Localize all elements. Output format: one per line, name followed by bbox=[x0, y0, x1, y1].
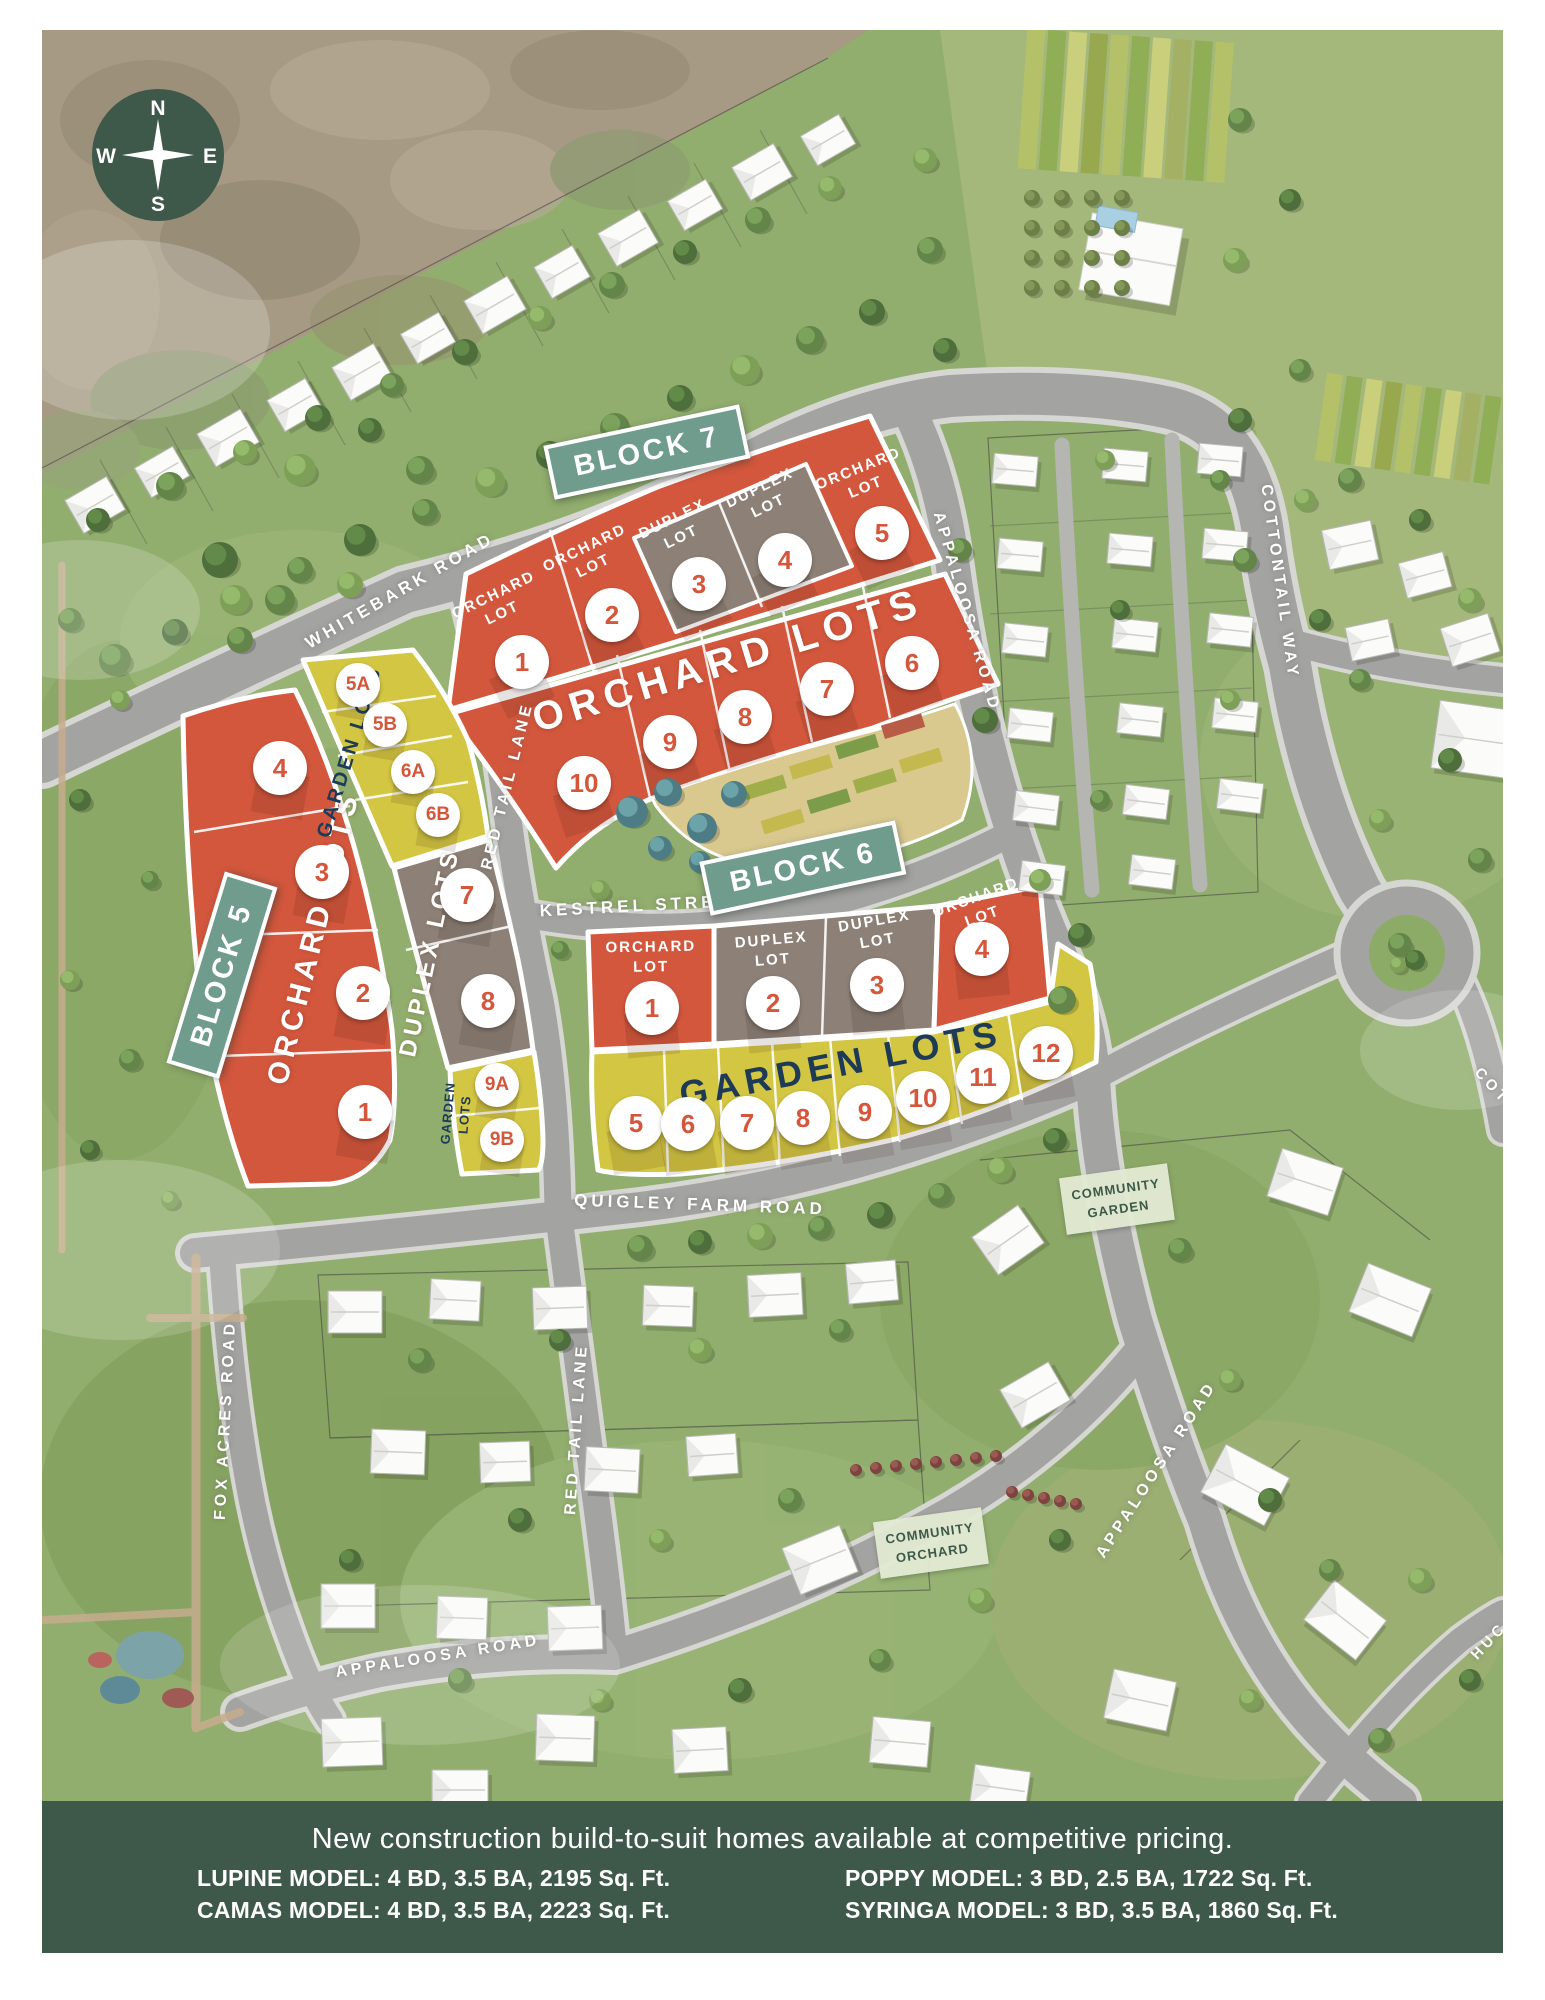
lot-number-b7-3: 3 bbox=[672, 557, 726, 611]
b5-garden-lots-9-label: GARDENLOTS bbox=[437, 1081, 476, 1146]
site-plan-map: WHITEBARK ROADCOTTONTAIL WAYAPPALOOSA RO… bbox=[42, 30, 1503, 1801]
syringa-model-spec: SYRINGA MODEL: 3 BD, 3.5 BA, 1860 Sq. Ft… bbox=[845, 1897, 1338, 1924]
lot-number-b6-12: 12 bbox=[1019, 1026, 1073, 1080]
lot-number-b6-9: 9 bbox=[838, 1085, 892, 1139]
block-6-sign: BLOCK 6 bbox=[699, 820, 906, 915]
b6-duplex-lot-3-label: DUPLEXLOT bbox=[837, 905, 916, 956]
camas-model-spec: CAMAS MODEL: 4 BD, 3.5 BA, 2223 Sq. Ft. bbox=[197, 1897, 670, 1924]
cottontail-edge-label: COT bbox=[1471, 1064, 1503, 1108]
community-orchard-sign: COMMUNITYORCHARD bbox=[873, 1507, 989, 1579]
lot-number-b7-8: 8 bbox=[718, 690, 772, 744]
lot-number-b5-6B: 6B bbox=[416, 793, 460, 837]
compass-rose: N S W E bbox=[92, 89, 224, 221]
lot-number-b7-1: 1 bbox=[495, 635, 549, 689]
compass-south: S bbox=[151, 193, 165, 216]
b6-orchard-lot-1-label-line2: LOT bbox=[606, 956, 697, 977]
lot-number-b6-10: 10 bbox=[896, 1071, 950, 1125]
lot-number-b6-7: 7 bbox=[720, 1096, 774, 1150]
lot-number-b5-1: 1 bbox=[338, 1085, 392, 1139]
b6-duplex-lot-2-label: DUPLEXLOT bbox=[734, 927, 810, 972]
b6-orchard-lot-1-label-line1: ORCHARD bbox=[605, 937, 696, 958]
lot-number-b5-5B: 5B bbox=[363, 703, 407, 747]
appaloosa-road-sw-label: APPALOOSA ROAD bbox=[334, 1632, 541, 1682]
b7-orchard-lot-1-label: ORCHARDLOT bbox=[449, 567, 548, 642]
b7-duplex-lot-3-label: DUPLEXLOT bbox=[636, 495, 719, 562]
site-plan-page: WHITEBARK ROADCOTTONTAIL WAYAPPALOOSA RO… bbox=[0, 0, 1545, 2000]
block-5-sign: BLOCK 5 bbox=[166, 871, 277, 1079]
lot-number-b7-6: 6 bbox=[885, 636, 939, 690]
poppy-model-spec: POPPY MODEL: 3 BD, 2.5 BA, 1722 Sq. Ft. bbox=[845, 1865, 1313, 1892]
lupine-model-spec: LUPINE MODEL: 4 BD, 3.5 BA, 2195 Sq. Ft. bbox=[197, 1865, 670, 1892]
lot-number-b5-4: 4 bbox=[253, 741, 307, 795]
quigley-farm-road-label: QUIGLEY FARM ROAD bbox=[574, 1191, 826, 1220]
lot-number-b7-2: 2 bbox=[585, 588, 639, 642]
lot-number-b5-9A: 9A bbox=[475, 1063, 519, 1107]
lot-number-b6-4: 4 bbox=[955, 922, 1009, 976]
compass-north: N bbox=[150, 97, 165, 120]
lot-number-b7-4: 4 bbox=[758, 533, 812, 587]
lot-number-b6-5: 5 bbox=[609, 1096, 663, 1150]
lot-number-b5-9B: 9B bbox=[480, 1118, 524, 1162]
appaloosa-road-n-label: APPALOOSA ROAD bbox=[929, 510, 1003, 714]
b7-orchard-lot-5-label: ORCHARDLOT bbox=[813, 443, 912, 513]
footer-headline: New construction build-to-suit homes ava… bbox=[42, 1823, 1503, 1856]
compass-west: W bbox=[96, 145, 116, 168]
map-labels: WHITEBARK ROADCOTTONTAIL WAYAPPALOOSA RO… bbox=[42, 30, 1503, 1801]
lot-number-b5-8: 8 bbox=[461, 974, 515, 1028]
cottontail-way-label: COTTONTAIL WAY bbox=[1256, 483, 1301, 680]
b6-orchard-lot-1-label: ORCHARDLOT bbox=[605, 937, 696, 978]
b7-orchard-lot-2-label: ORCHARDLOT bbox=[540, 520, 639, 595]
community-garden-sign: COMMUNITYGARDEN bbox=[1059, 1163, 1175, 1235]
red-tail-lane-s-label: RED TAIL LANE bbox=[562, 1342, 592, 1515]
lot-number-b7-5: 5 bbox=[855, 506, 909, 560]
lot-number-b6-1: 1 bbox=[625, 981, 679, 1035]
lot-number-b7-10: 10 bbox=[557, 756, 611, 810]
lot-number-b5-6A: 6A bbox=[391, 750, 435, 794]
huckleberry-edge-label: HUC bbox=[1468, 1619, 1503, 1663]
compass-east: E bbox=[203, 145, 217, 168]
lot-number-b6-8: 8 bbox=[776, 1091, 830, 1145]
lot-number-b5-7: 7 bbox=[440, 868, 494, 922]
lot-number-b5-3: 3 bbox=[295, 845, 349, 899]
lot-number-b6-6: 6 bbox=[661, 1097, 715, 1151]
appaloosa-road-se-label: APPALOOSA ROAD bbox=[1093, 1378, 1221, 1562]
lot-number-b6-11: 11 bbox=[956, 1050, 1010, 1104]
lot-number-b6-3: 3 bbox=[850, 958, 904, 1012]
lot-number-b5-5A: 5A bbox=[336, 663, 380, 707]
lot-number-b7-7: 7 bbox=[800, 662, 854, 716]
lot-number-b6-2: 2 bbox=[746, 976, 800, 1030]
red-tail-lane-n-label: RED TAIL LANE bbox=[478, 700, 537, 872]
fox-acres-road-label: FOX ACRES ROAD bbox=[212, 1320, 240, 1521]
block-7-sign: BLOCK 7 bbox=[543, 404, 750, 499]
footer-banner: New construction build-to-suit homes ava… bbox=[42, 1801, 1503, 1953]
lot-number-b5-2: 2 bbox=[336, 966, 390, 1020]
b7-duplex-lot-4-label: DUPLEXLOT bbox=[723, 464, 806, 531]
lot-number-b7-9: 9 bbox=[643, 715, 697, 769]
